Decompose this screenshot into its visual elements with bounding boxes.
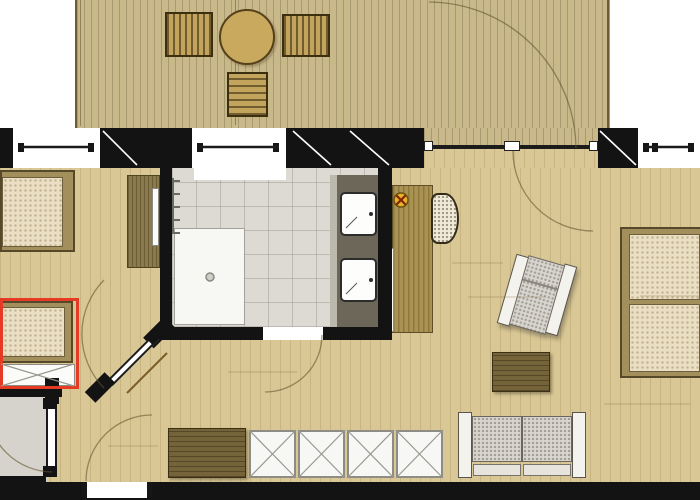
window-2-cap-right — [273, 143, 279, 152]
window-1-cap-right — [88, 143, 94, 152]
vestibule-floor — [0, 395, 47, 482]
deck-lounger-1 — [165, 12, 213, 57]
terrace-door-frame-mark-3 — [589, 141, 598, 151]
double-bed-mattress-1 — [629, 234, 700, 300]
shower-tray — [174, 228, 245, 325]
entry-jamb-right — [147, 482, 152, 498]
towel-radiator — [172, 178, 180, 234]
closet-unit-2 — [298, 430, 345, 478]
sofa-back-1 — [473, 464, 521, 476]
deck-bench — [227, 72, 268, 117]
closet-cabinet-dark — [168, 428, 246, 478]
desk — [392, 185, 433, 333]
floor-plan — [0, 0, 700, 500]
sofa — [458, 410, 586, 478]
entry-door-threshold — [86, 482, 148, 498]
window-2-sill-recess — [194, 168, 286, 180]
wall-pier-c — [598, 128, 638, 168]
terrace-deck-floor — [75, 0, 610, 128]
vestibule-door-leaf — [46, 406, 57, 472]
window-2-cap-left — [197, 143, 203, 152]
vestibule-door-hinge-1 — [43, 398, 57, 409]
window-1-cap-left — [18, 143, 24, 152]
sofa-arm-right — [572, 412, 586, 478]
wall-pier-a — [100, 128, 192, 168]
window-3-cap-right — [688, 143, 694, 152]
sofa-back-2 — [523, 464, 571, 476]
coffee-table — [492, 352, 550, 392]
window-2 — [192, 128, 286, 168]
closet-unit-1 — [249, 430, 296, 478]
closet-unit-3 — [347, 430, 394, 478]
wall-bathroom-right — [378, 168, 392, 340]
sofa-cushion-1 — [472, 416, 522, 462]
bed-2-highlight-box — [0, 298, 79, 389]
sink-1 — [340, 192, 377, 236]
sofa-arm-left — [458, 412, 472, 478]
wall-bathroom-bottom-left — [160, 327, 263, 340]
wall-bathroom-left — [160, 168, 172, 340]
bed-1-mattress — [2, 177, 63, 247]
entry-jamb-left — [82, 482, 87, 498]
desk-chair — [431, 193, 459, 244]
window-3-cap-mid — [652, 143, 658, 152]
vestibule-door-hinge-2 — [43, 466, 57, 477]
wall-pier-b — [286, 128, 424, 168]
double-bed-mattress-2 — [629, 304, 700, 372]
bathroom-door-threshold — [263, 327, 323, 340]
terrace-door-frame-mark-2 — [504, 141, 520, 151]
window-3-cap-left — [643, 143, 649, 152]
deck-edge-line-right — [607, 0, 609, 128]
wall-bathroom-bottom-right — [323, 327, 392, 340]
window-1 — [13, 128, 100, 168]
deck-lounger-2 — [282, 14, 330, 57]
sofa-cushion-2 — [522, 416, 572, 462]
closet-unit-4 — [396, 430, 443, 478]
sink-2 — [340, 258, 377, 302]
deck-round-table — [219, 9, 275, 65]
wall-top-left-corner — [0, 128, 13, 168]
vanity-edge-strip — [330, 175, 337, 330]
wardrobe-door-panel — [152, 188, 159, 246]
terrace-door-frame-mark-1 — [424, 141, 433, 151]
deck-edge-line-left — [80, 0, 81, 126]
